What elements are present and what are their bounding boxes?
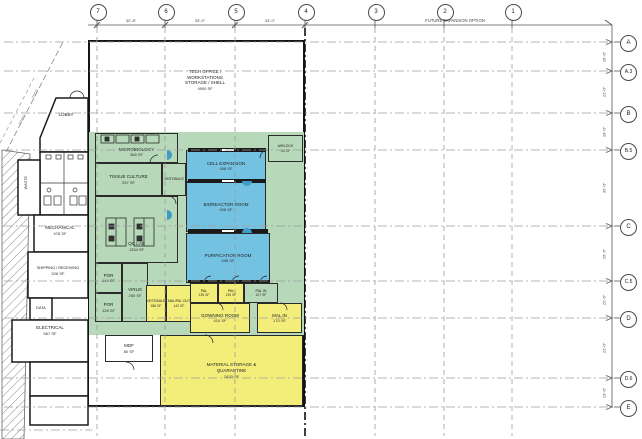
grid-column-bubble: 3 — [368, 4, 385, 21]
annotation-layer — [0, 0, 642, 439]
grid-column-bubble: 6 — [158, 4, 175, 21]
future-expansion-note: FUTURE EXPANSION OPTION — [425, 18, 484, 23]
row-dimension: 13'-0" — [602, 387, 607, 397]
grid-column-bubble: 5 — [228, 4, 245, 21]
grid-column-bubble: 4 — [298, 4, 315, 21]
row-dimension: 25'-6" — [602, 248, 607, 258]
column-dimension: 33'-0" — [265, 18, 275, 23]
grid-column-bubble: 7 — [90, 4, 107, 21]
grid-row-bubble: D — [620, 311, 637, 328]
grid-column-bubble: 1 — [505, 4, 522, 21]
grid-row-bubble: B — [620, 106, 637, 123]
grid-row-bubble: B.5 — [620, 143, 637, 160]
row-dimension: 15'-0" — [602, 51, 607, 61]
lab-benches — [101, 135, 159, 246]
row-dimension: 22'-0" — [602, 87, 607, 97]
door-symbols — [167, 150, 252, 233]
grid-row-bubble: D.6 — [620, 371, 637, 388]
grid-row-bubble: C.5 — [620, 274, 637, 291]
column-dimension: 32'-8" — [126, 18, 136, 23]
row-dimension: 19'-0" — [602, 126, 607, 136]
row-dimension: 22'-0" — [602, 343, 607, 353]
grid-row-bubble: A — [620, 35, 637, 52]
row-gridlines — [0, 42, 614, 430]
equipment-bands — [188, 148, 270, 283]
grid-row-bubble: C — [620, 219, 637, 236]
row-dimension: 32'-0" — [602, 183, 607, 193]
grid-row-bubble: E — [620, 400, 637, 417]
grid-row-bubble: A.3 — [620, 64, 637, 81]
row-dimension: 22'-6" — [602, 294, 607, 304]
floor-plan-sheet: TECH OFFICE / WORKSTATIONS STORAGE / SHE… — [0, 0, 642, 439]
column-dimension: 33'-0" — [195, 18, 205, 23]
